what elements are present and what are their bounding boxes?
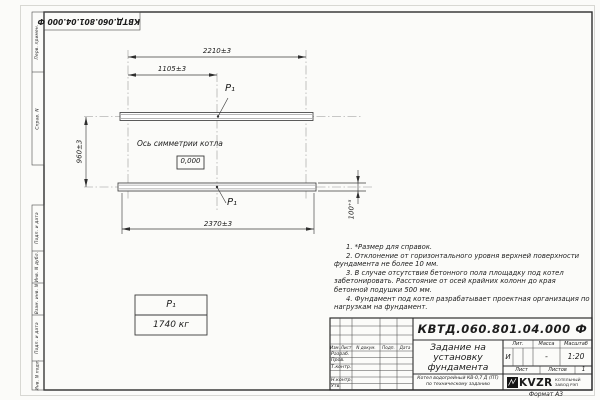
header-cell-podp: Подп. [380,344,397,351]
sheet-label: Лист [503,366,540,374]
lit-value: И [503,348,513,366]
logo-caption-line-2: ЗАВОД РЭП [555,383,591,388]
margin-label-vzam-inv: Взам. инв. N [32,283,44,315]
mass-value: - [533,348,560,366]
lit-header: Лит. [503,340,533,348]
header-cell-izm: Изм. [330,344,340,351]
kvzr-logo-text: KVZR [519,376,553,390]
header-cell-list: Лист [340,344,352,351]
sheets-label: Листов [540,366,575,374]
header-cell-data: Дата [397,344,413,351]
kvzr-logo-caption: КОТЕЛЬНЫЙ ЗАВОД РЭП [555,378,591,388]
title-block-doc-number: КВТД.060.801.04.000 Ф [413,320,592,338]
note-3: 3. В случае отсутствия бетонного пола пл… [334,269,590,295]
load-point-label-top: P₁ [225,83,235,94]
sheets-value: 1 [575,366,592,374]
load-point-label-bottom: P₁ [227,197,237,208]
mass-table-load-header: P₁ [135,295,207,315]
mass-table-value: 1740 кг [135,315,207,335]
header-cell-ndokum: N докум. [352,344,380,351]
note-2: 2. Отклонение от горизонтального уровня … [334,252,590,269]
format-label: Формат А3 [516,391,576,398]
margin-label-inv-dubl: Инв. N дубл. [32,251,44,283]
subtitle-line-2: по техническому заданию [413,382,503,388]
scale-header: Масштаб [560,340,592,348]
scale-value: 1:20 [560,348,592,366]
sig-row-tkontr: Т.контр. [331,365,351,372]
dim-right-100: 100⁺⁵ [347,190,358,230]
title-block-title: Задание на установку фундамента [413,343,503,373]
kvzr-logo-icon [507,377,518,388]
level-mark-0000: 0,000 [177,157,204,165]
note-4: 4. Фундамент под котел разрабатывает про… [334,295,590,312]
note-1: 1. *Размер для справок. [334,243,590,252]
dim-bottom-2370: 2370±3 [188,220,248,228]
dim-left-960: 960±3 [75,132,86,172]
margin-label-podp-data-1: Подп. и дата [32,205,44,251]
dim-half-1105: 1105±3 [142,65,202,73]
margin-label-sprav-n: Справ. N [32,72,44,165]
technical-notes: 1. *Размер для справок. 2. Отклонение от… [334,243,590,312]
sig-row-utv: Утв. [331,384,341,391]
margin-label-inv-podl: Инв. N подл. [32,361,44,390]
margin-stamp-boxes [32,12,140,390]
dim-top-2210: 2210±3 [187,47,247,55]
drawing-sheet: КВТД.060.801.04.000 Ф Перв. примен. Спра… [0,0,600,400]
margin-label-perv-primen: Перв. примен. [32,12,44,72]
mass-header: Масса [533,340,560,348]
boiler-symmetry-axis-label: Ось симметрии котла [137,139,223,148]
corner-stamp-doc-number: КВТД.060.801.04.000 Ф [44,13,140,29]
subtitle-line-1: Котел водогрейный КВ-0,7 Д (ПТ) [413,376,503,382]
title-block-subtitle: Котел водогрейный КВ-0,7 Д (ПТ) по техни… [413,376,503,388]
margin-label-podp-data-2: Подп. и дата [32,315,44,361]
title-line-3: фундамента [413,363,503,373]
